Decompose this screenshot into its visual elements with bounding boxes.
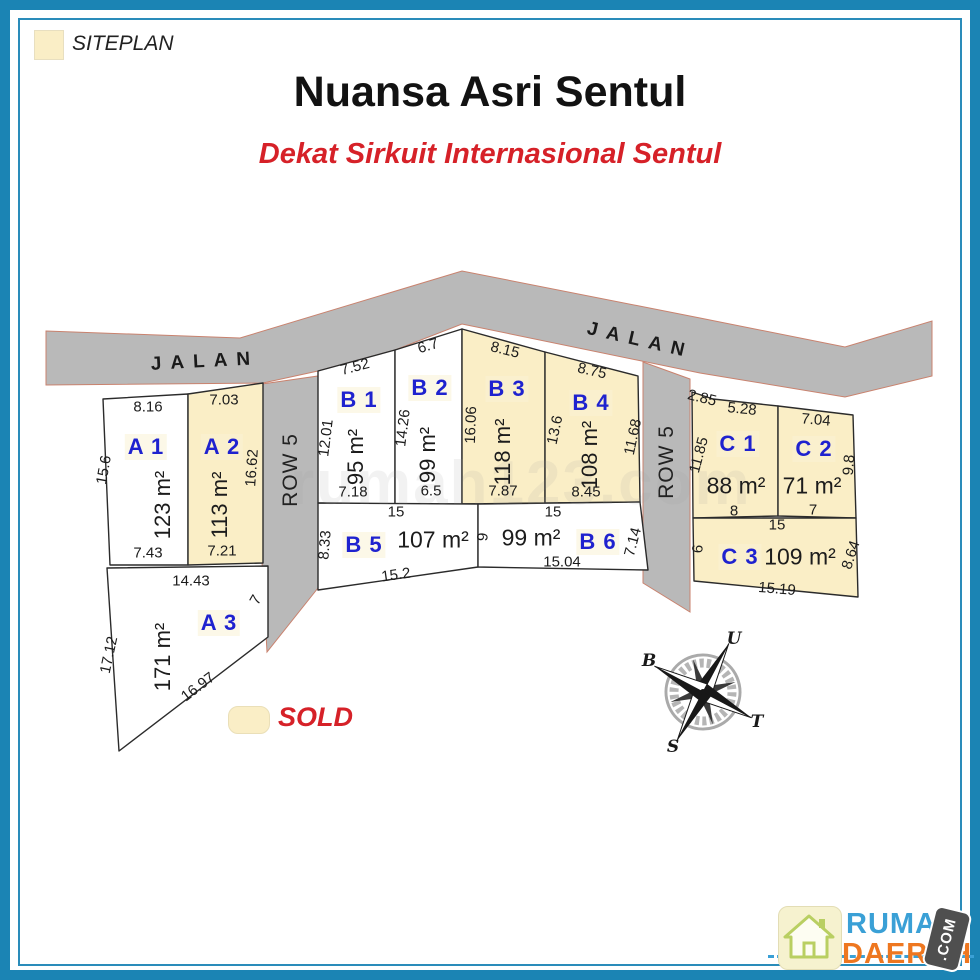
lot-c1-dim-top: 5.28	[727, 399, 758, 419]
lot-a2-area: 113 m²	[207, 472, 233, 539]
compass-east-label: T	[751, 712, 764, 732]
lot-c1-area: 88 m²	[707, 473, 766, 500]
lot-a3-area: 171 m²	[150, 623, 176, 691]
siteplan-page: { "header": { "title": "Nuansa Asri Sent…	[0, 0, 980, 980]
lot-b1-id: B 1	[337, 387, 380, 413]
lot-c2-id: C 2	[792, 436, 835, 462]
lot-b5-id: B 5	[342, 532, 385, 558]
lot-c2-dim-right: 9.8	[840, 454, 859, 476]
lot-a2-dim-top: 7.03	[209, 392, 238, 409]
lot-c2-dim-top: 7.04	[801, 410, 832, 429]
lot-b6-id: B 6	[576, 529, 619, 555]
compass-south-label: S	[667, 737, 679, 757]
lot-b3-dim-bottom: 7.87	[488, 483, 517, 500]
lot-b1-dim-bottom: 7.18	[338, 484, 367, 501]
lot-b3-id: B 3	[485, 376, 528, 402]
logo-com-text: .COM	[934, 916, 961, 962]
lot-a1-id: A 1	[125, 434, 167, 460]
lot-b4-id: B 4	[569, 390, 612, 416]
siteplan-legend-swatch	[34, 30, 64, 60]
lot-c3-dim-left: 6	[689, 544, 707, 554]
lot-b3-dim-left: 16.06	[462, 406, 480, 444]
lot-a1-area: 123 m²	[150, 471, 176, 539]
lot-a1-dim-top: 8.16	[133, 399, 162, 416]
compass-west-label: B	[642, 651, 656, 671]
lot-c3-dim-top: 15	[769, 517, 786, 534]
page-subtitle: Dekat Sirkuit Internasional Sentul	[0, 138, 980, 171]
lot-c2-dim-bottom: 7	[809, 502, 817, 519]
compass-north-label: U	[727, 629, 742, 649]
lot-c3-id: C 3	[718, 544, 761, 570]
lot-b6-dim-bottom: 15.04	[543, 554, 581, 571]
lot-b2-dim-bottom: 6.5	[421, 483, 442, 500]
lot-a2-dim-bottom: 7.21	[207, 543, 236, 560]
lot-b5-dim-left: 8.33	[315, 530, 334, 561]
lot-a2-id: A 2	[201, 434, 243, 460]
lot-c1-id: C 1	[716, 431, 759, 457]
lot-a3-id: A 3	[198, 610, 240, 636]
lot-b4-area: 108 m²	[577, 421, 603, 489]
compass-rose-icon	[629, 618, 778, 767]
lot-b2-area: 99 m²	[415, 427, 441, 483]
row5-right-label: ROW 5	[655, 425, 679, 499]
lot-a1-dim-bottom: 7.43	[133, 545, 162, 562]
sold-legend-swatch	[228, 706, 270, 734]
lot-c2-area: 71 m²	[783, 473, 842, 500]
page-title: Nuansa Asri Sentul	[0, 68, 980, 117]
lot-b3-area: 118 m²	[490, 419, 516, 486]
lot-c3-area: 109 m²	[764, 544, 836, 571]
lot-c3-dim-bottom: 15.19	[758, 579, 797, 599]
lot-c1-dim-bottom: 8	[730, 503, 738, 520]
siteplan-legend-label: SITEPLAN	[72, 32, 174, 56]
lot-b6-dim-top: 15	[545, 504, 562, 521]
logo-house-icon	[778, 906, 842, 970]
lot-a3-dim-top: 14.43	[172, 573, 210, 590]
lot-b6-area: 99 m²	[502, 525, 561, 552]
lot-b1-area: 95 m²	[343, 429, 369, 485]
lot-b5-dim-top: 15	[388, 504, 405, 521]
row5-left-label: ROW 5	[279, 433, 303, 507]
lot-b6-dim-left: 9	[474, 532, 492, 542]
sold-legend-label: SOLD	[278, 702, 353, 733]
lot-b4-dim-bottom: 8.45	[571, 484, 600, 501]
lot-b2-id: B 2	[408, 375, 451, 401]
lot-b5-area: 107 m²	[397, 527, 469, 554]
lot-a2-dim-right: 16.62	[242, 449, 262, 488]
